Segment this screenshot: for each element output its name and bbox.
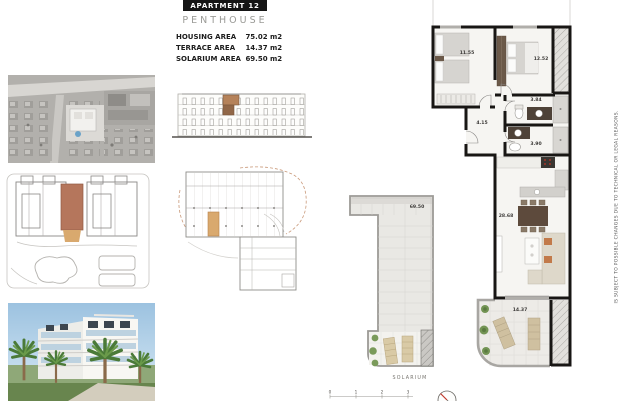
room-label-living: 28.68: [499, 213, 514, 219]
plan-sheet: { "header": { "title": "APARTMENT 12", "…: [0, 0, 630, 401]
room-label-terrace: 14.37: [513, 307, 528, 313]
area-value: 75.02 m2: [245, 33, 282, 41]
main-floor-plan: 11.55 12.52 3.84 4.15 3.90 28.68 14.37: [425, 0, 625, 401]
sun-lounger: [528, 318, 540, 350]
penthouse-subtitle: PENTHOUSE: [168, 15, 282, 26]
scale-bar: 0 1 2 3: [325, 389, 475, 401]
area-row-terrace: TERRACE AREA 14.37 m2: [176, 43, 282, 54]
stairwell-hatch: [553, 28, 570, 93]
area-row-solarium: SOLARIUM AREA 69.50 m2: [176, 54, 282, 65]
room-label-bathroom1: 3.84: [530, 97, 541, 103]
pool-icon: [75, 131, 81, 137]
scale-tick: 3: [407, 390, 410, 395]
key-plan: [178, 162, 314, 300]
compass-icon: [438, 391, 456, 401]
highlight-terrace-site: [63, 230, 81, 242]
highlight-unit-keyplan: [208, 212, 219, 236]
room-label-hall: 4.15: [476, 120, 487, 126]
solarium-caption: SOLARIUM: [393, 375, 428, 381]
elevation-drawing: [172, 85, 312, 143]
area-table: HOUSING AREA 75.02 m2 TERRACE AREA 14.37…: [176, 32, 282, 65]
solarium-plan: 69.50 SOLARIUM: [347, 192, 441, 388]
area-label: TERRACE AREA: [176, 43, 243, 54]
area-label: HOUSING AREA: [176, 32, 243, 43]
building-render: [8, 303, 155, 401]
room-label-bathroom2: 3.90: [530, 141, 541, 147]
area-row-housing: HOUSING AREA 75.02 m2: [176, 32, 282, 43]
area-label: SOLARIUM AREA: [176, 54, 243, 65]
stairs-hatch: [552, 300, 569, 364]
aerial-photo: [8, 75, 155, 163]
highlight-unit-elevation: [223, 95, 239, 105]
solarium-stairs-hatch: [421, 330, 433, 366]
room-label-bedroom2: 12.52: [534, 56, 549, 62]
site-plan: [3, 168, 153, 294]
solarium-area-label: 69.50: [410, 204, 425, 210]
scale-tick: 2: [381, 390, 384, 395]
disclaimer-text: IS SUBJECT TO POSSIBLE CHANGES DUE TO TE…: [615, 154, 624, 304]
scale-tick: 0: [329, 390, 332, 395]
dining-set: [518, 200, 548, 232]
highlight-unit-site: [61, 184, 83, 230]
scale-tick: 1: [355, 390, 358, 395]
room-label-bedroom1: 11.55: [460, 50, 475, 56]
area-value: 69.50 m2: [245, 55, 282, 63]
area-value: 14.37 m2: [245, 44, 282, 52]
apartment-title: APARTMENT 12: [183, 0, 267, 11]
